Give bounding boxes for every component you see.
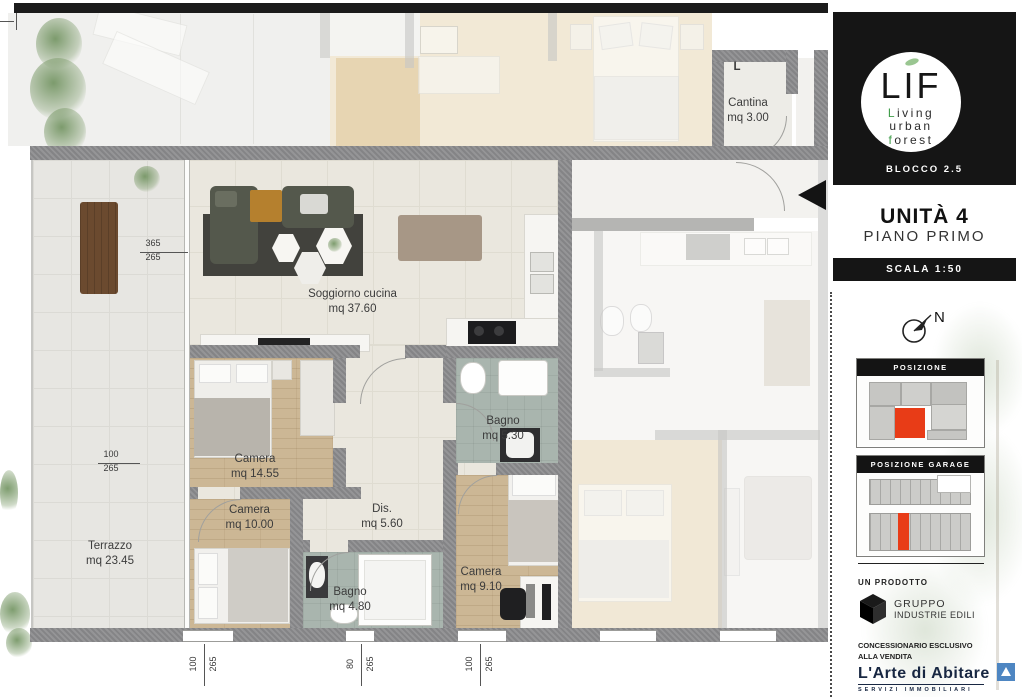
dealer-icon-glyph — [1001, 667, 1011, 676]
producer-label: UN PRODOTTO — [858, 578, 928, 587]
nightstand — [570, 24, 592, 50]
map-block — [927, 430, 967, 440]
wall-unit-divider — [558, 160, 572, 628]
neighbor-wall — [655, 430, 820, 440]
neighbor-sink — [767, 238, 789, 255]
neighbor-bidet — [630, 304, 652, 332]
scale-bar: SCALA 1:50 — [833, 258, 1016, 281]
wall-segment — [348, 540, 443, 552]
entrance-arrow-icon — [798, 180, 826, 210]
sidebar-dotted-line — [830, 292, 832, 697]
blanket — [194, 398, 270, 456]
sofa-throw — [300, 194, 328, 214]
cantina-letter: L — [727, 60, 747, 75]
position-map-box: POSIZIONE — [856, 358, 985, 448]
nightstand — [272, 360, 292, 380]
dim-left-upper: 365265 — [140, 237, 166, 264]
dim-line — [98, 463, 140, 464]
wall-segment — [240, 487, 303, 499]
tv — [258, 338, 310, 345]
floor-plan-sheet: L Cantinamq 3.00 — [0, 0, 1022, 697]
corner-tick-v — [16, 13, 17, 30]
tree-trunk-watermark — [996, 360, 999, 690]
kitchen-sink — [530, 274, 554, 294]
terrace-table — [80, 202, 118, 294]
wall-bottom — [30, 628, 828, 642]
wall-segment — [446, 346, 558, 358]
nightstand — [680, 24, 704, 50]
kitchen-sink — [530, 252, 554, 272]
wall-segment — [443, 358, 456, 403]
room-label-terrazzo: Terrazzomq 23.45 — [60, 539, 160, 568]
dealer-sub: SERVIZI IMMOBILIARI — [858, 687, 1015, 693]
dining-table — [398, 215, 482, 261]
brand-words: Living urban forest — [861, 107, 961, 147]
map-block — [931, 404, 967, 430]
keyboard — [526, 584, 535, 618]
burner — [494, 326, 504, 336]
room-label-cantina: Cantinamq 3.00 — [708, 96, 788, 125]
pillow — [512, 472, 556, 496]
garage-stalls-row — [869, 513, 971, 551]
map-block — [931, 382, 967, 406]
wall-segment — [786, 50, 798, 94]
sidebar-divider — [858, 563, 984, 564]
dealer-label: CONCESSIONARIO ESCLUSIVO ALLA VENDITA — [858, 641, 973, 662]
neighbor-wall — [572, 218, 754, 231]
wardrobe — [300, 360, 335, 436]
room-label-dis: Dis.mq 5.60 — [332, 502, 432, 531]
neighbor-room-patch — [336, 58, 420, 146]
neighbor-wall — [718, 430, 727, 628]
room-label-bagno1: Bagnomq 5.30 — [458, 414, 548, 443]
burner — [474, 326, 484, 336]
top-black-bar — [14, 3, 828, 13]
brand-panel: LIF Living urban forest BLOCCO 2.5 — [833, 12, 1016, 185]
dealer-logo: L'Arte di Abitare SERVIZI IMMOBILIARI — [858, 663, 1015, 693]
neighbor-wall — [594, 231, 603, 371]
neighbor-counter — [418, 56, 500, 94]
window — [720, 630, 776, 642]
compass-icon: N — [898, 304, 950, 348]
wall-segment — [405, 345, 446, 358]
neighbor-washer — [638, 332, 664, 364]
pillow — [236, 364, 268, 383]
dealer-underline — [858, 684, 984, 685]
garage-ramp — [937, 475, 971, 493]
producer-name: GRUPPO INDUSTRIE EDILI — [894, 598, 975, 620]
neighbor-sink — [744, 238, 766, 255]
neighbor-wall — [405, 13, 414, 68]
neighbor-wall — [548, 13, 557, 61]
window — [183, 630, 233, 642]
dim-bottom-3: 100 265 — [466, 642, 496, 688]
scale-label: SCALA 1:50 — [886, 264, 963, 275]
dim-left-lower: 100265 — [98, 448, 124, 475]
map-block — [869, 406, 895, 440]
wall-segment — [188, 345, 360, 358]
wall-segment — [303, 540, 310, 552]
garage-map-title: POSIZIONE GARAGE — [857, 456, 984, 473]
dealer-blue-icon — [997, 663, 1015, 681]
terrace-divider-line — [253, 14, 254, 144]
neighbor-rug — [744, 476, 812, 560]
blanket — [594, 76, 679, 140]
room-label-camera2: Cameramq 10.00 — [202, 503, 297, 532]
neighbor-wall — [818, 160, 828, 628]
potted-plant — [134, 166, 160, 192]
terrace-glass-wall — [184, 160, 190, 628]
neighbor-wall — [594, 368, 670, 377]
dim-bottom-2: 80 265 — [347, 642, 377, 688]
wall-segment — [333, 358, 346, 403]
toilet — [460, 362, 486, 394]
blanket — [508, 500, 558, 562]
neighbor-sink-unit — [420, 26, 458, 54]
side-table — [250, 190, 282, 222]
monitor — [542, 584, 551, 620]
position-map-content — [857, 376, 984, 446]
pillow — [198, 587, 218, 619]
pillow — [198, 553, 218, 585]
dim-line — [140, 252, 188, 253]
sofa-cushion — [215, 191, 237, 207]
brand-acronym: LIF — [861, 65, 961, 107]
corner-tick-h — [0, 21, 14, 22]
pillow — [639, 22, 674, 50]
wall-segment — [333, 448, 346, 487]
room-label-soggiorno: Soggiorno cucinamq 37.60 — [285, 287, 420, 316]
map-block — [869, 382, 901, 406]
tree — [0, 470, 18, 516]
neighbor-toilet — [600, 306, 624, 336]
room-label-bagno2: Bagnomq 4.80 — [305, 585, 395, 614]
neighbor-dining-table — [764, 300, 810, 386]
window — [458, 630, 506, 642]
wall-segment — [303, 487, 361, 499]
gruppo-cube-icon — [858, 592, 890, 626]
wall-segment — [443, 440, 456, 628]
map-highlight-unit — [895, 408, 925, 438]
wall-top — [30, 146, 828, 160]
shower-tray — [498, 360, 548, 396]
pillow — [584, 490, 622, 516]
tree — [6, 628, 32, 658]
map-block — [901, 382, 931, 406]
dealer-brand: L'Arte di Abitare — [858, 665, 990, 682]
window — [346, 630, 374, 642]
wall-segment — [814, 50, 828, 160]
window — [600, 630, 656, 642]
position-map-title: POSIZIONE — [857, 359, 984, 376]
table-plant — [328, 238, 342, 252]
terrace-edge-line — [31, 160, 33, 628]
pillow — [626, 490, 664, 516]
unit-floor: PIANO PRIMO — [833, 228, 1016, 245]
dim-bottom-1: 100 265 — [190, 642, 220, 688]
brand-logo-circle: LIF Living urban forest — [861, 52, 961, 152]
garage-map-box: POSIZIONE GARAGE — [856, 455, 985, 557]
wall-segment — [496, 463, 558, 475]
cantina-corridor — [796, 58, 814, 160]
neighbor-rangehood — [686, 234, 730, 260]
pillow — [598, 22, 633, 50]
room-label-camera1: Cameramq 14.55 — [210, 452, 300, 481]
garage-highlight-stall — [898, 513, 909, 550]
room-label-camera3: Cameramq 9.10 — [436, 565, 526, 594]
brand-block-label: BLOCCO 2.5 — [833, 164, 1016, 175]
unit-title: UNITÀ 4 — [833, 205, 1016, 229]
pillow — [199, 364, 231, 383]
compass-north-label: N — [934, 309, 945, 326]
garage-map-content — [857, 473, 984, 555]
blanket — [579, 540, 669, 598]
blanket — [228, 548, 288, 622]
